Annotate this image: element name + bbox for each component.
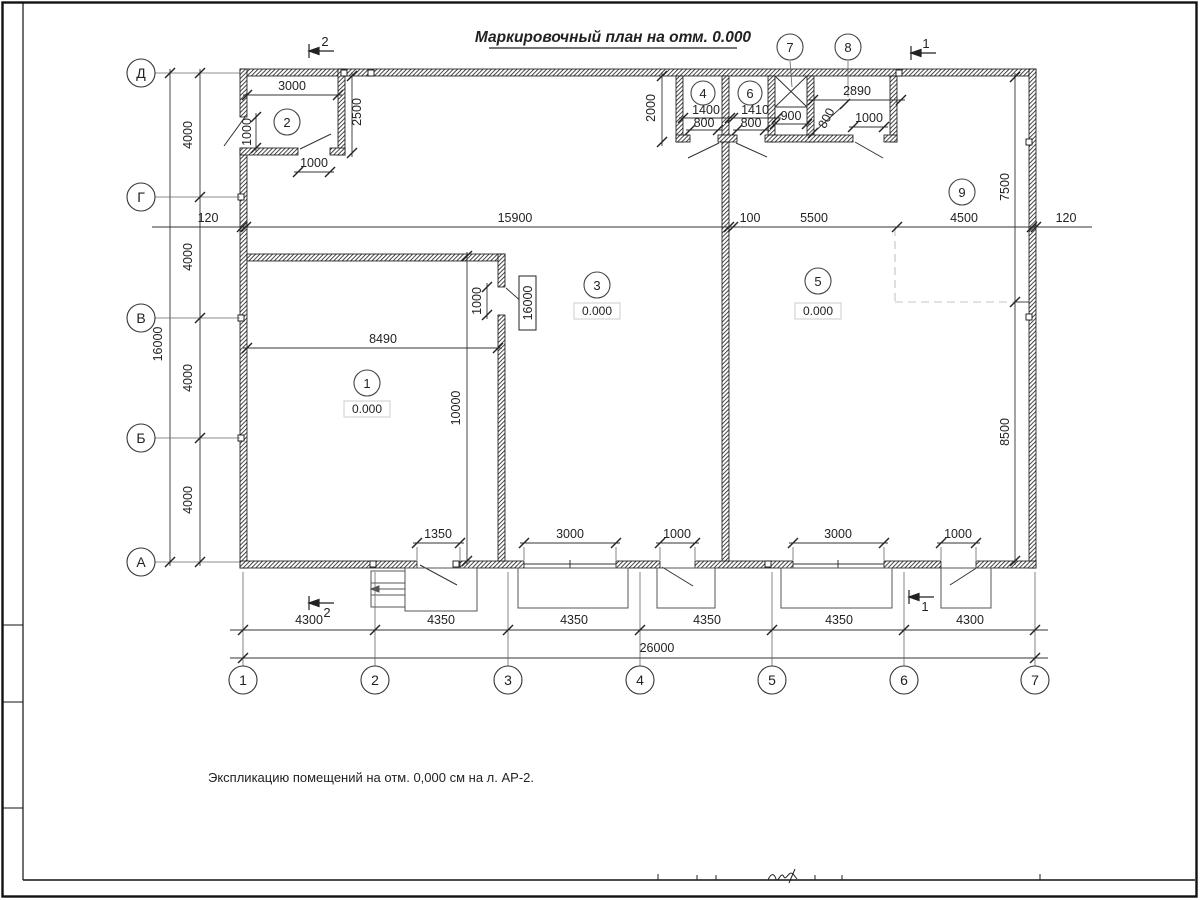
wall-room2-right bbox=[338, 69, 345, 155]
entrance-stairs bbox=[371, 571, 405, 607]
door-swings bbox=[224, 117, 978, 586]
axis-label-col-3: 3 bbox=[504, 672, 512, 688]
porch bbox=[518, 568, 628, 608]
dim-room6-door: 800 bbox=[741, 116, 762, 130]
dim-shaft-width: 900 bbox=[781, 109, 802, 123]
wall-room2-bottom bbox=[330, 148, 345, 155]
dimension-lines bbox=[152, 69, 1092, 658]
door-leaf-entry5 bbox=[950, 567, 978, 585]
porch bbox=[657, 568, 715, 608]
wall-room4-left bbox=[676, 76, 683, 142]
dim-room4-door: 800 bbox=[694, 116, 715, 130]
dim-wall-gap: 100 bbox=[740, 211, 761, 225]
room-level-3: 0.000 bbox=[582, 304, 612, 318]
dim-col-total: 26000 bbox=[640, 641, 675, 655]
wall-room2-bottom bbox=[240, 148, 298, 155]
dim-row-spacing-2: 4000 bbox=[181, 243, 195, 271]
axis-label-row-g: Г bbox=[137, 189, 145, 205]
signature-scribble bbox=[768, 869, 797, 883]
room-number-2: 2 bbox=[283, 115, 290, 130]
dim-row-spacing-3: 4000 bbox=[181, 364, 195, 392]
dim-door1: 1350 bbox=[424, 527, 452, 541]
dim-offset-right: 120 bbox=[1056, 211, 1077, 225]
room-number-8: 8 bbox=[844, 40, 851, 55]
dim-span-5500: 5500 bbox=[800, 211, 828, 225]
door-leaf-room6 bbox=[736, 143, 767, 157]
dim-level-mark: 16000 bbox=[521, 286, 535, 321]
dim-right-bottom: 8500 bbox=[998, 418, 1012, 446]
wall-marker-squares bbox=[238, 70, 1032, 567]
room-number-4: 4 bbox=[699, 86, 706, 101]
door-leaf-corridor bbox=[855, 142, 883, 158]
dim-corridor-door: 1000 bbox=[855, 111, 883, 125]
dim-span-main: 15900 bbox=[498, 211, 533, 225]
wall-room1-right-lower bbox=[498, 315, 505, 561]
door-leaf-entry3 bbox=[662, 567, 693, 586]
dim-col-spacing-1: 4300 bbox=[295, 613, 323, 627]
dim-span-4500: 4500 bbox=[950, 211, 978, 225]
dim-door5: 1000 bbox=[944, 527, 972, 541]
wall-exterior-left-upper bbox=[240, 69, 247, 117]
title-block-ticks bbox=[658, 874, 1040, 880]
room-level-1: 0.000 bbox=[352, 402, 382, 416]
wall-exterior-bottom bbox=[616, 561, 660, 568]
section-mark-2-top: 2 bbox=[309, 34, 334, 58]
porch bbox=[941, 568, 991, 608]
dim-col-spacing-6: 4300 bbox=[956, 613, 984, 627]
dim-col-spacing-4: 4350 bbox=[693, 613, 721, 627]
axis-label-row-d: Д bbox=[136, 65, 146, 81]
axis-label-col-1: 1 bbox=[239, 672, 247, 688]
section-label-1-bottom: 1 bbox=[921, 599, 928, 614]
dim-door2: 3000 bbox=[556, 527, 584, 541]
room-number-3: 3 bbox=[593, 278, 600, 293]
dim-row-spacing-1: 4000 bbox=[181, 121, 195, 149]
axis-label-row-a: А bbox=[136, 554, 146, 570]
dim-offset-left: 120 bbox=[198, 211, 219, 225]
dim-col-spacing-3: 4350 bbox=[560, 613, 588, 627]
room-number-1: 1 bbox=[363, 376, 370, 391]
dim-col-spacing-5: 4350 bbox=[825, 613, 853, 627]
axis-label-row-b: Б bbox=[136, 430, 145, 446]
page-title: Маркировочный план на отм. 0.000 bbox=[475, 29, 752, 46]
dim-room2-door-bottom: 1000 bbox=[300, 156, 328, 170]
dim-row-total: 16000 bbox=[151, 327, 165, 362]
axis-label-row-v: В bbox=[136, 310, 145, 326]
wall-room8-right bbox=[890, 76, 897, 142]
room-number-7: 7 bbox=[786, 40, 793, 55]
wall-exterior-bottom bbox=[240, 561, 417, 568]
room-number-5: 5 bbox=[814, 274, 821, 289]
room9-dashed-boundary bbox=[895, 228, 1015, 302]
section-label-1-top: 1 bbox=[922, 36, 929, 51]
porch bbox=[781, 568, 892, 608]
wall-center-divider bbox=[722, 76, 729, 561]
level-boxes bbox=[344, 303, 841, 417]
room-number-6: 6 bbox=[746, 86, 753, 101]
wall-exterior-bottom bbox=[884, 561, 941, 568]
section-mark-1-bottom: 1 bbox=[909, 590, 934, 614]
wall-exterior-bottom bbox=[695, 561, 793, 568]
dimension-ticks bbox=[165, 68, 1041, 663]
axis-label-col-7: 7 bbox=[1031, 672, 1039, 688]
drawing-title: Маркировочный план на отм. 0.000 bbox=[475, 29, 752, 48]
axis-label-col-6: 6 bbox=[900, 672, 908, 688]
floor-plan-svg: Маркировочный план на отм. 0.000 bbox=[0, 0, 1200, 900]
wall-room1-right-upper bbox=[498, 254, 505, 287]
dim-room1-depth: 10000 bbox=[449, 391, 463, 426]
dim-room2-door-left: 1000 bbox=[240, 118, 254, 146]
door-leaf-room2-inner bbox=[300, 134, 331, 149]
ventilation-shaft bbox=[775, 76, 807, 107]
dim-room8-door: 800 bbox=[815, 106, 837, 131]
wall-shaft-left bbox=[768, 76, 775, 142]
porch bbox=[405, 568, 477, 611]
wall-exterior-left-lower bbox=[240, 148, 247, 568]
room-number-9: 9 bbox=[958, 185, 965, 200]
dim-room1-width: 8490 bbox=[369, 332, 397, 346]
dim-room2-depth: 2500 bbox=[350, 98, 364, 126]
porches bbox=[371, 568, 991, 611]
dim-door3: 1000 bbox=[663, 527, 691, 541]
wall-block-bottom bbox=[676, 135, 690, 142]
wall-block-bottom bbox=[884, 135, 897, 142]
dim-block-depth: 2000 bbox=[644, 94, 658, 122]
dim-room6-width: 1410 bbox=[741, 103, 769, 117]
section-label-2-top: 2 bbox=[321, 34, 328, 49]
dim-room2-width: 3000 bbox=[278, 79, 306, 93]
plan-note: Экспликацию помещений на отм. 0,000 см н… bbox=[208, 770, 534, 785]
dimension-labels: 120 15900 100 5500 4500 120 3000 2500 10… bbox=[151, 79, 1076, 655]
door-leaf-room4 bbox=[688, 143, 719, 158]
wall-exterior-bottom bbox=[460, 561, 524, 568]
dim-col-spacing-2: 4350 bbox=[427, 613, 455, 627]
dim-row-spacing-4: 4000 bbox=[181, 486, 195, 514]
axis-label-col-2: 2 bbox=[371, 672, 379, 688]
walls bbox=[240, 69, 1036, 568]
axis-label-col-5: 5 bbox=[768, 672, 776, 688]
level-mark-16000: 16000 bbox=[519, 276, 536, 330]
dim-right-top: 7500 bbox=[998, 173, 1012, 201]
room-level-5: 0.000 bbox=[803, 304, 833, 318]
drawing-sheet: Маркировочный план на отм. 0.000 bbox=[0, 0, 1200, 900]
dim-room8-width: 2890 bbox=[843, 84, 871, 98]
axis-label-col-4: 4 bbox=[636, 672, 644, 688]
section-mark-1-top: 1 bbox=[911, 36, 936, 60]
wall-block-bottom bbox=[718, 135, 737, 142]
dim-room1-inner-door: 1000 bbox=[470, 287, 484, 315]
wall-exterior-top bbox=[240, 69, 1036, 76]
dim-door4: 3000 bbox=[824, 527, 852, 541]
section-label-2-bottom: 2 bbox=[323, 605, 330, 620]
wall-exterior-bottom bbox=[976, 561, 1036, 568]
